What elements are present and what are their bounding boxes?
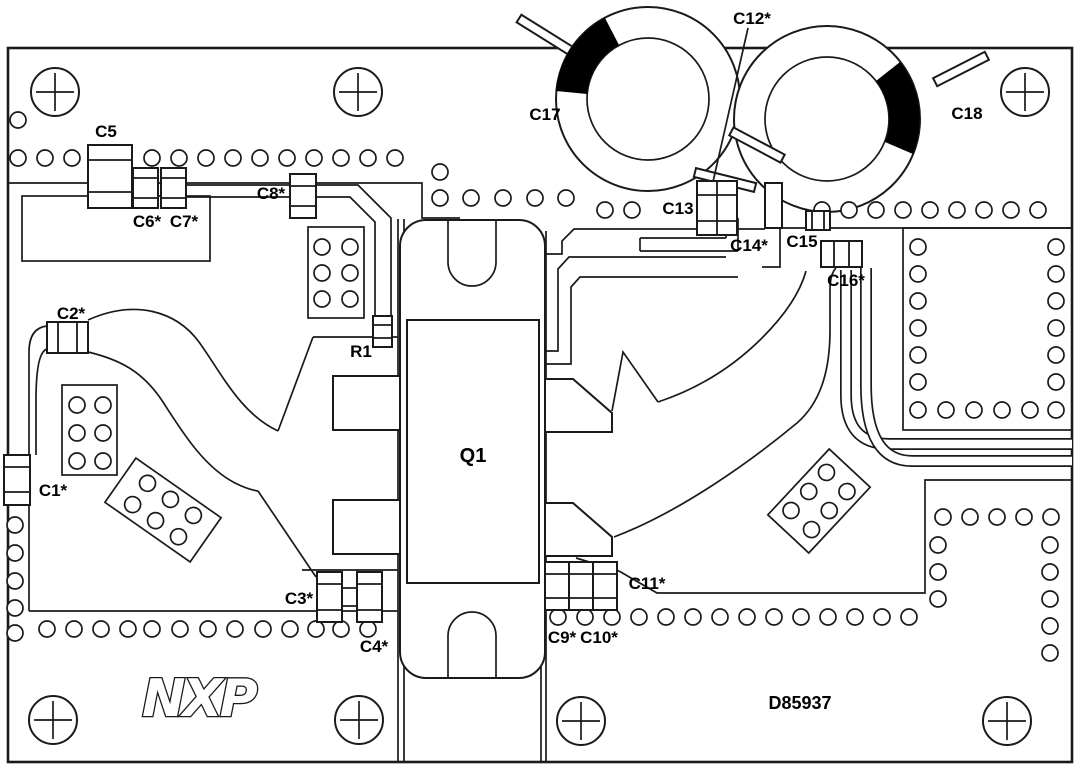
via — [820, 609, 836, 625]
resistor-r1 — [373, 316, 392, 347]
via — [7, 600, 23, 616]
label-c15: C15 — [786, 232, 817, 251]
via — [604, 609, 620, 625]
via-array-right-rotated — [768, 449, 870, 553]
via — [910, 347, 926, 363]
cap-c4 — [342, 572, 382, 622]
label-c6: C6* — [133, 212, 162, 231]
mounting-hole — [29, 696, 77, 744]
via — [144, 621, 160, 637]
cap-c9 — [545, 562, 569, 610]
via — [432, 164, 448, 180]
via — [66, 621, 82, 637]
via — [938, 402, 954, 418]
via — [631, 609, 647, 625]
via — [793, 609, 809, 625]
via — [550, 609, 566, 625]
via — [144, 150, 160, 166]
via — [577, 609, 593, 625]
via — [1048, 374, 1064, 390]
via — [39, 621, 55, 637]
via — [1022, 402, 1038, 418]
via — [994, 402, 1010, 418]
via — [841, 202, 857, 218]
via — [37, 150, 53, 166]
via — [712, 609, 728, 625]
label-c10: C10* — [580, 628, 618, 647]
via — [685, 609, 701, 625]
via — [895, 202, 911, 218]
via — [200, 621, 216, 637]
via — [1048, 402, 1064, 418]
label-c7: C7* — [170, 212, 199, 231]
via — [910, 374, 926, 390]
via — [1016, 509, 1032, 525]
via — [658, 609, 674, 625]
toroid-c18-lead-top-icon — [933, 52, 989, 86]
via — [7, 545, 23, 561]
via — [387, 150, 403, 166]
q1-gate-lead-upper — [333, 376, 400, 430]
cap-c2 — [47, 322, 88, 353]
cap-c1 — [4, 455, 30, 505]
via — [935, 509, 951, 525]
label-c18: C18 — [951, 104, 982, 123]
label-c12: C12* — [733, 9, 771, 28]
label-c2: C2* — [57, 304, 86, 323]
via — [930, 564, 946, 580]
via — [1042, 537, 1058, 553]
cap-c3 — [317, 572, 342, 622]
q1-drain-lead-upper — [545, 379, 612, 432]
mounting-hole — [557, 697, 605, 745]
mounting-hole — [334, 68, 382, 116]
via — [252, 150, 268, 166]
label-c3: C3* — [285, 589, 314, 608]
via — [1043, 509, 1059, 525]
via — [910, 239, 926, 255]
mounting-hole — [31, 68, 79, 116]
via — [976, 202, 992, 218]
cap-c7 — [161, 168, 186, 208]
via — [120, 621, 136, 637]
via — [922, 202, 938, 218]
toroid-c18-foot-pad — [765, 183, 782, 228]
via — [255, 621, 271, 637]
via — [901, 609, 917, 625]
board-drawing-svg: C5 C6* C7* C8* C2* C1* R1 Q1 C3* C4* C9*… — [0, 0, 1080, 769]
via — [930, 537, 946, 553]
q1-gate-lead-lower — [333, 500, 400, 554]
label-c8: C8* — [257, 184, 286, 203]
via — [1048, 347, 1064, 363]
via — [279, 150, 295, 166]
via — [360, 621, 376, 637]
via — [198, 150, 214, 166]
via — [949, 202, 965, 218]
via — [225, 150, 241, 166]
via — [172, 621, 188, 637]
via — [7, 517, 23, 533]
cap-c10 — [569, 562, 593, 610]
via — [910, 320, 926, 336]
via — [989, 509, 1005, 525]
via — [10, 150, 26, 166]
label-c16: C16* — [827, 271, 865, 290]
via — [930, 591, 946, 607]
cap-c6 — [133, 168, 158, 208]
via — [495, 190, 511, 206]
via — [962, 509, 978, 525]
via — [360, 150, 376, 166]
via — [333, 150, 349, 166]
via — [7, 625, 23, 641]
via — [739, 609, 755, 625]
via — [910, 402, 926, 418]
mounting-hole — [1001, 68, 1049, 116]
via — [432, 190, 448, 206]
label-q1: Q1 — [460, 445, 487, 467]
q1-drain-lead-lower — [545, 503, 612, 556]
via — [10, 112, 26, 128]
cap-c12-c13 — [697, 181, 737, 235]
via — [527, 190, 543, 206]
via — [1048, 239, 1064, 255]
via — [227, 621, 243, 637]
via — [1048, 320, 1064, 336]
via — [766, 609, 782, 625]
label-c13: C13 — [662, 199, 693, 218]
via — [64, 150, 80, 166]
via — [463, 190, 479, 206]
via — [868, 202, 884, 218]
label-c17: C17 — [529, 105, 560, 124]
via — [333, 621, 349, 637]
via — [910, 266, 926, 282]
board-number: D85937 — [768, 693, 831, 713]
via — [1042, 645, 1058, 661]
via — [282, 621, 298, 637]
label-c14: C14* — [730, 236, 768, 255]
via-array-top-middle — [308, 227, 364, 318]
via — [93, 621, 109, 637]
via — [308, 621, 324, 637]
via — [1042, 618, 1058, 634]
via-array-left-rotated — [105, 458, 221, 562]
cap-c5 — [88, 145, 132, 208]
via — [171, 150, 187, 166]
cap-c16 — [821, 241, 862, 267]
via — [1042, 591, 1058, 607]
via — [1048, 266, 1064, 282]
via — [624, 202, 640, 218]
via — [558, 190, 574, 206]
cap-c8 — [290, 174, 316, 218]
via-array-left-upright — [62, 385, 117, 475]
nxp-logo: NXP — [142, 669, 258, 729]
cap-c15 — [806, 211, 830, 230]
via — [306, 150, 322, 166]
label-c11: C11* — [629, 574, 666, 593]
output-loop-traces — [846, 268, 1072, 461]
label-c4: C4* — [360, 637, 389, 656]
via — [1030, 202, 1046, 218]
label-r1: R1 — [350, 342, 372, 361]
via — [847, 609, 863, 625]
via — [1003, 202, 1019, 218]
via — [7, 573, 23, 589]
pcb-assembly-drawing: C5 C6* C7* C8* C2* C1* R1 Q1 C3* C4* C9*… — [0, 0, 1080, 769]
via — [1048, 293, 1064, 309]
via — [874, 609, 890, 625]
label-c5: C5 — [95, 122, 117, 141]
label-c9: C9* — [548, 628, 577, 647]
via — [910, 293, 926, 309]
label-c1: C1* — [39, 481, 68, 500]
toroid-c17 — [517, 7, 740, 191]
via — [1042, 564, 1058, 580]
mounting-hole — [983, 697, 1031, 745]
mounting-hole — [335, 696, 383, 744]
via — [597, 202, 613, 218]
toroid-c17-lead-top-icon — [517, 15, 578, 58]
via — [966, 402, 982, 418]
